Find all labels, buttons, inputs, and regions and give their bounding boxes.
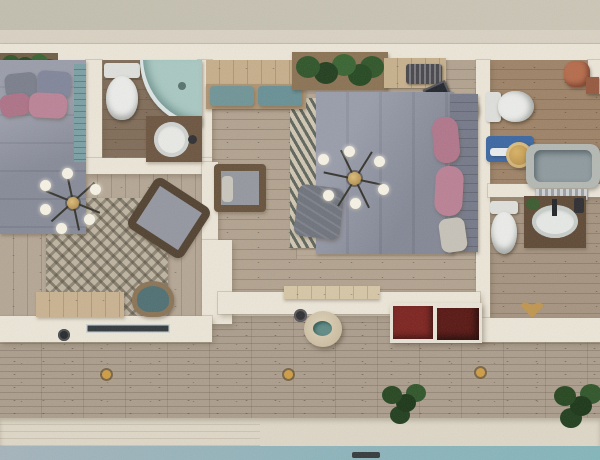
bathtub <box>526 144 600 188</box>
chandelier-bulb <box>56 223 67 234</box>
deck-plant-2 <box>550 384 596 428</box>
vanity-left-bath <box>146 116 202 162</box>
toilet-left-bath <box>104 63 142 121</box>
headboard-teal <box>74 64 86 162</box>
bathroom-left-wall-w <box>86 60 102 162</box>
plant-foliage <box>554 386 576 406</box>
deck-light-2 <box>284 370 293 379</box>
chandelier-bulb <box>40 204 51 215</box>
entry-bench <box>206 84 306 109</box>
south-wall-right <box>478 318 600 342</box>
chandelier-bulb <box>350 198 361 209</box>
plant-foliage <box>382 386 402 404</box>
deck-plant-1 <box>380 382 424 424</box>
shower-drain <box>178 82 186 90</box>
deck-light-3 <box>476 368 485 377</box>
chandelier-hub <box>67 197 79 209</box>
teal-stool <box>132 281 174 317</box>
chandelier-hub <box>348 172 361 185</box>
concrete-plank-detail <box>0 418 260 448</box>
bathtub-basin <box>534 150 592 182</box>
light-pillow-master <box>438 216 468 253</box>
pool-ladder <box>352 452 380 458</box>
lounge-chair-pillow <box>222 176 233 202</box>
deck-light-1 <box>102 370 111 379</box>
stair-step-upper <box>393 306 433 339</box>
chandelier-bulb <box>344 146 355 157</box>
vanity-plant <box>526 198 540 210</box>
chandelier-bulb <box>378 184 389 195</box>
chandelier-bulb <box>318 154 329 165</box>
toilet-ensuite <box>486 91 536 123</box>
planter-box-master <box>292 52 388 90</box>
chandelier-bulb <box>90 184 101 195</box>
terracotta-pot-small <box>586 77 599 94</box>
plant-foliage <box>296 56 320 78</box>
toilet-vanity-room <box>488 201 520 255</box>
vanity-faucet <box>552 199 557 216</box>
toilet-bowl <box>498 91 534 122</box>
pink-bolster-1 <box>431 116 461 164</box>
sputnik-chandelier-master <box>318 146 392 212</box>
entry-wood-strip <box>206 60 306 85</box>
round-sink <box>154 122 189 157</box>
window-slot <box>86 324 170 333</box>
pink-bolster-2 <box>434 165 465 216</box>
radiator <box>406 64 442 84</box>
sink-faucet <box>188 135 197 144</box>
swimming-pool <box>0 446 600 460</box>
wood-bench-left <box>36 292 124 317</box>
red-deck-stairs <box>390 303 482 343</box>
vanity-master <box>524 196 586 248</box>
pillow-pink-1 <box>0 92 31 118</box>
sputnik-chandelier-left <box>40 168 106 236</box>
toilet-bowl <box>491 212 517 254</box>
deck-bench-center <box>284 286 380 299</box>
stair-step-lower <box>437 308 479 340</box>
background-top-band <box>0 0 600 30</box>
wall-sconce-knob <box>58 329 70 341</box>
pillow-pink-2 <box>28 92 67 119</box>
bench-cushion-teal-1 <box>210 86 254 106</box>
chandelier-bulb <box>323 190 334 201</box>
chandelier-bulb <box>40 180 51 191</box>
chandelier-bulb <box>374 156 385 167</box>
chandelier-bulb <box>84 214 95 225</box>
vanity-bottles <box>574 198 584 213</box>
toilet-bowl <box>106 76 138 120</box>
round-pouf-table <box>304 311 342 347</box>
pouf-plant <box>313 321 332 336</box>
lounge-chair-hallway <box>214 164 266 212</box>
chandelier-bulb <box>62 168 73 179</box>
floor-plan-render <box>0 0 600 460</box>
